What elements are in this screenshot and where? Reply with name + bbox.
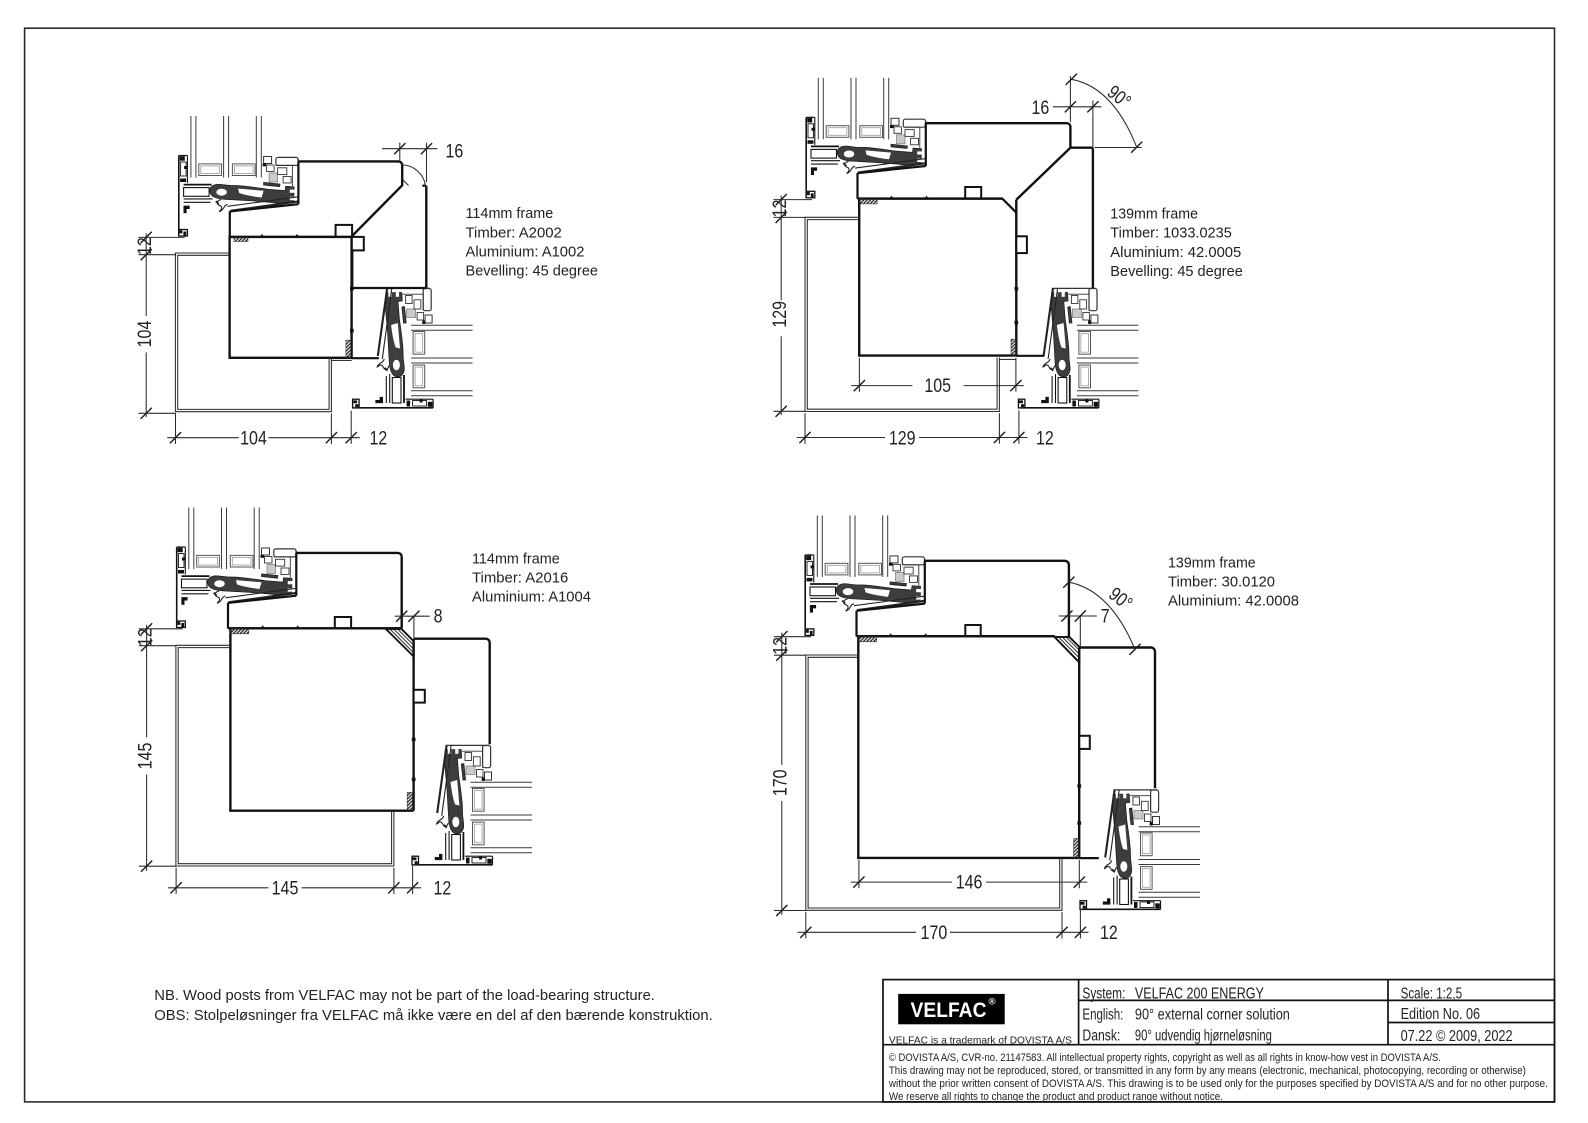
svg-text:Timber: 30.0120: Timber: 30.0120 [1168, 574, 1275, 591]
svg-text:We reserve all rights to chang: We reserve all rights to change the prod… [889, 1091, 1223, 1103]
svg-text:07.22 © 2009, 2022: 07.22 © 2009, 2022 [1401, 1028, 1513, 1045]
svg-text:145: 145 [272, 879, 299, 900]
svg-text:90° external corner solution: 90° external corner solution [1135, 1007, 1290, 1024]
svg-text:Aluminium: A1002: Aluminium: A1002 [466, 243, 585, 260]
svg-text:105: 105 [924, 376, 951, 397]
svg-text:146: 146 [956, 873, 983, 894]
svg-text:90°: 90° [1103, 82, 1134, 113]
svg-text:English:: English: [1082, 1007, 1123, 1024]
svg-text:12: 12 [135, 237, 156, 255]
svg-text:NB. Wood posts from VELFAC may: NB. Wood posts from VELFAC may not be pa… [154, 987, 655, 1004]
svg-text:139mm frame: 139mm frame [1110, 206, 1198, 223]
svg-text:Bevelling: 45 degree: Bevelling: 45 degree [1110, 263, 1243, 280]
svg-text:12: 12 [1100, 923, 1118, 944]
svg-text:Timber: A2016: Timber: A2016 [472, 570, 568, 587]
svg-text:Timber: A2002: Timber: A2002 [466, 224, 562, 241]
svg-text:®: ® [989, 997, 996, 1008]
svg-text:12: 12 [135, 628, 156, 646]
svg-text:104: 104 [135, 320, 156, 347]
svg-text:VELFAC 200 ENERGY: VELFAC 200 ENERGY [1135, 986, 1264, 1003]
svg-text:114mm frame: 114mm frame [472, 551, 560, 568]
svg-text:12: 12 [434, 879, 452, 900]
svg-text:OBS: Stolpeløsninger fra VELFA: OBS: Stolpeløsninger fra VELFAC må ikke … [154, 1007, 712, 1024]
svg-text:Aluminium: A1004: Aluminium: A1004 [472, 589, 591, 606]
svg-text:170: 170 [921, 923, 948, 944]
svg-text:VELFAC is a trademark of DOVIS: VELFAC is a trademark of DOVISTA A/S [889, 1035, 1072, 1047]
svg-text:Bevelling: 45 degree: Bevelling: 45 degree [466, 263, 599, 280]
svg-text:Aluminium: 42.0008: Aluminium: 42.0008 [1168, 593, 1299, 610]
svg-text:16: 16 [446, 142, 464, 163]
svg-text:12: 12 [1036, 428, 1054, 449]
svg-text:Aluminium: 42.0005: Aluminium: 42.0005 [1110, 244, 1241, 261]
svg-text:12: 12 [770, 200, 791, 218]
svg-text:Edition No. 06: Edition No. 06 [1401, 1006, 1481, 1023]
svg-text:145: 145 [135, 743, 156, 770]
svg-text:90° udvendig hjørneløsning: 90° udvendig hjørneløsning [1135, 1028, 1272, 1045]
svg-text:System:: System: [1082, 986, 1125, 1003]
svg-text:© DOVISTA A/S, CVR-no. 2114758: © DOVISTA A/S, CVR-no. 21147583. All int… [889, 1052, 1441, 1064]
svg-text:16: 16 [1032, 98, 1050, 119]
svg-text:114mm frame: 114mm frame [466, 205, 554, 222]
svg-text:12: 12 [370, 429, 388, 450]
svg-text:without the prior written cons: without the prior written consent of DOV… [888, 1078, 1548, 1090]
svg-text:12: 12 [771, 637, 792, 655]
svg-text:129: 129 [770, 301, 791, 328]
svg-text:Scale: 1:2,5: Scale: 1:2,5 [1401, 985, 1463, 1002]
svg-text:7: 7 [1101, 606, 1110, 627]
svg-text:Dansk:: Dansk: [1082, 1028, 1120, 1045]
svg-text:139mm frame: 139mm frame [1168, 555, 1256, 572]
svg-text:This drawing may not be reprod: This drawing may not be reproduced, stor… [889, 1065, 1526, 1077]
svg-text:129: 129 [889, 428, 916, 449]
svg-text:VELFAC: VELFAC [911, 999, 987, 1022]
svg-text:104: 104 [240, 429, 267, 450]
svg-text:Timber: 1033.0235: Timber: 1033.0235 [1110, 225, 1232, 242]
svg-text:8: 8 [434, 607, 443, 628]
svg-text:170: 170 [771, 769, 792, 796]
